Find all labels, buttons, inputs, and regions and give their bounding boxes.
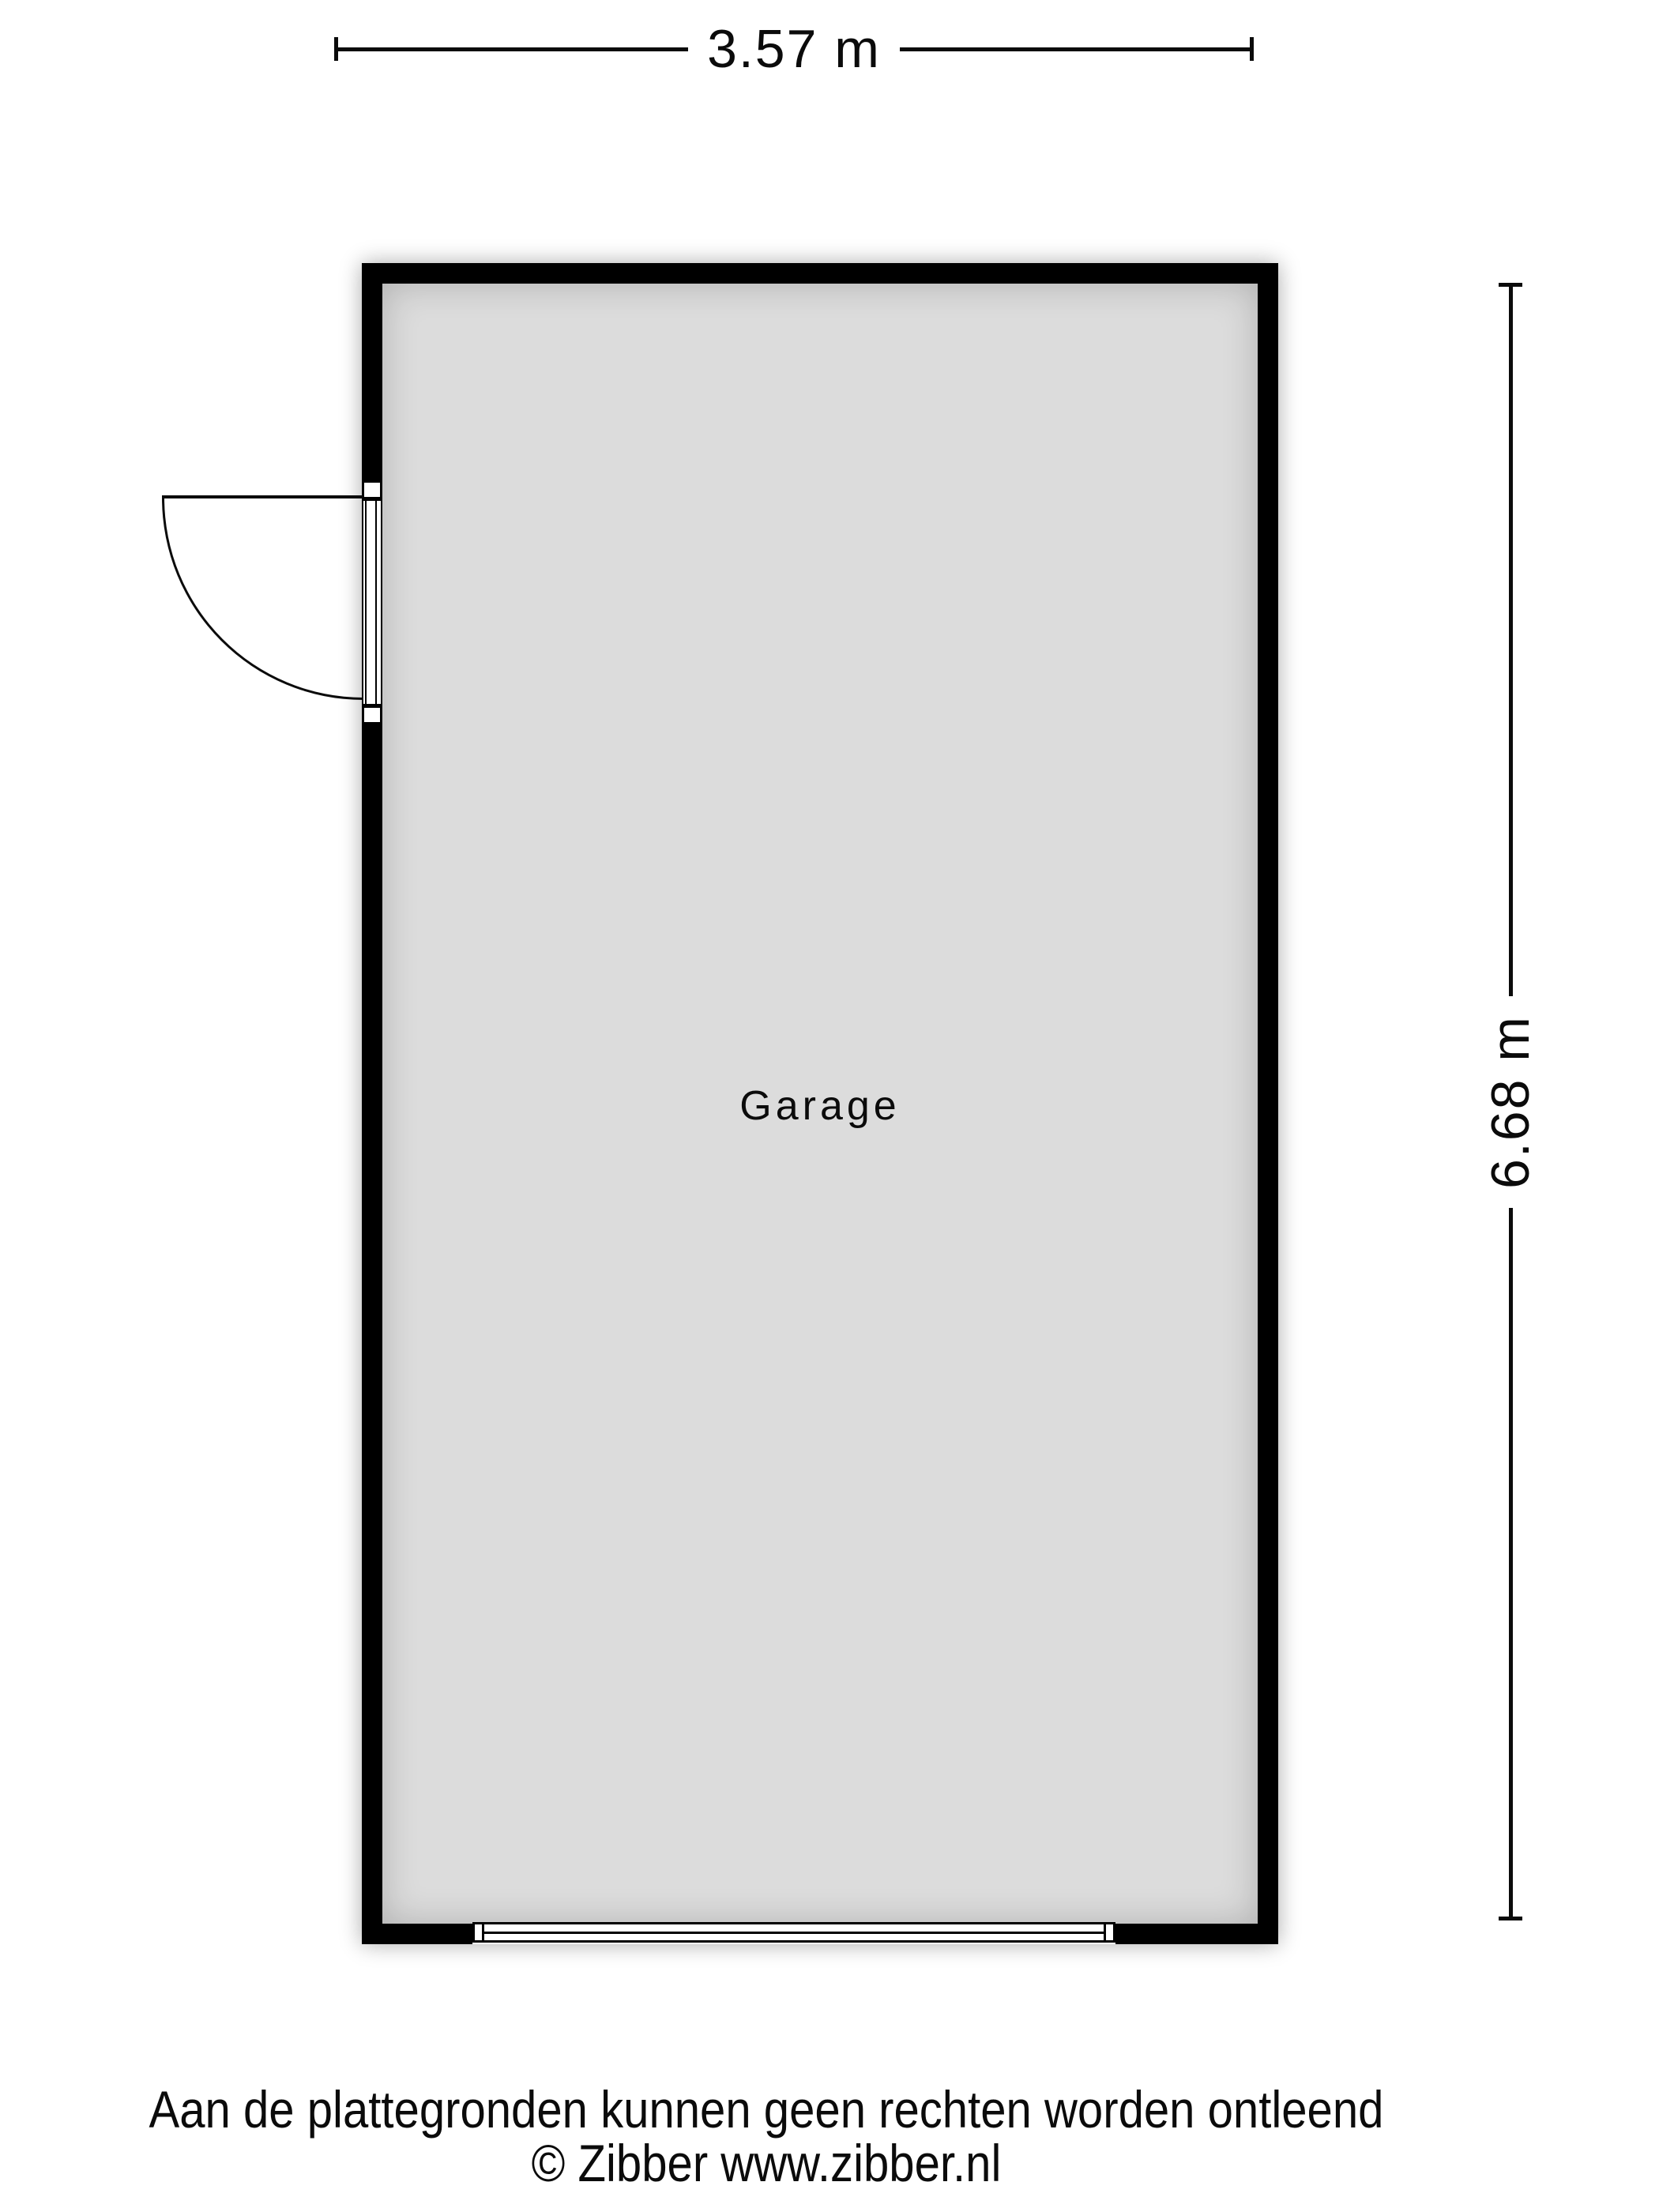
dimension-tick-bottom	[1499, 1917, 1522, 1920]
width-dimension: 3.57 m	[334, 27, 1254, 71]
garage-door-frame-post-right	[1104, 1922, 1115, 1943]
copyright-text: © Zibber www.zibber.nl	[92, 2136, 1440, 2190]
door-swing-arc	[162, 498, 363, 700]
disclaimer-text: Aan de plattegronden kunnen geen rechten…	[92, 2082, 1440, 2136]
door-slab-line	[375, 501, 377, 704]
height-dimension-label: 6.68 m	[1480, 1015, 1541, 1189]
dimension-line	[900, 47, 1250, 51]
garage-door-panel	[484, 1922, 1104, 1943]
footer-text: Aan de plattegronden kunnen geen rechten…	[92, 2082, 1440, 2190]
width-dimension-label: 3.57 m	[688, 18, 900, 80]
dimension-line	[1509, 287, 1513, 996]
door-frame-post-bottom	[362, 705, 382, 724]
garage-room-walls: Garage	[362, 263, 1278, 1944]
floorplan-page: 3.57 m 6.68 m Garage	[0, 0, 1659, 2212]
room-label-garage: Garage	[382, 1082, 1258, 1130]
door-slab	[362, 499, 382, 705]
height-dimension-label-box: 6.68 m	[1488, 996, 1533, 1208]
door-frame-post-top	[362, 480, 382, 499]
door-slab-line	[365, 501, 367, 704]
dimension-line	[338, 47, 688, 51]
dimension-line	[1509, 1208, 1513, 1917]
height-dimension: 6.68 m	[1488, 283, 1533, 1920]
dimension-tick-right	[1250, 37, 1254, 61]
garage-door-frame-post-left	[472, 1922, 484, 1943]
garage-door-panel-line	[484, 1932, 1104, 1934]
